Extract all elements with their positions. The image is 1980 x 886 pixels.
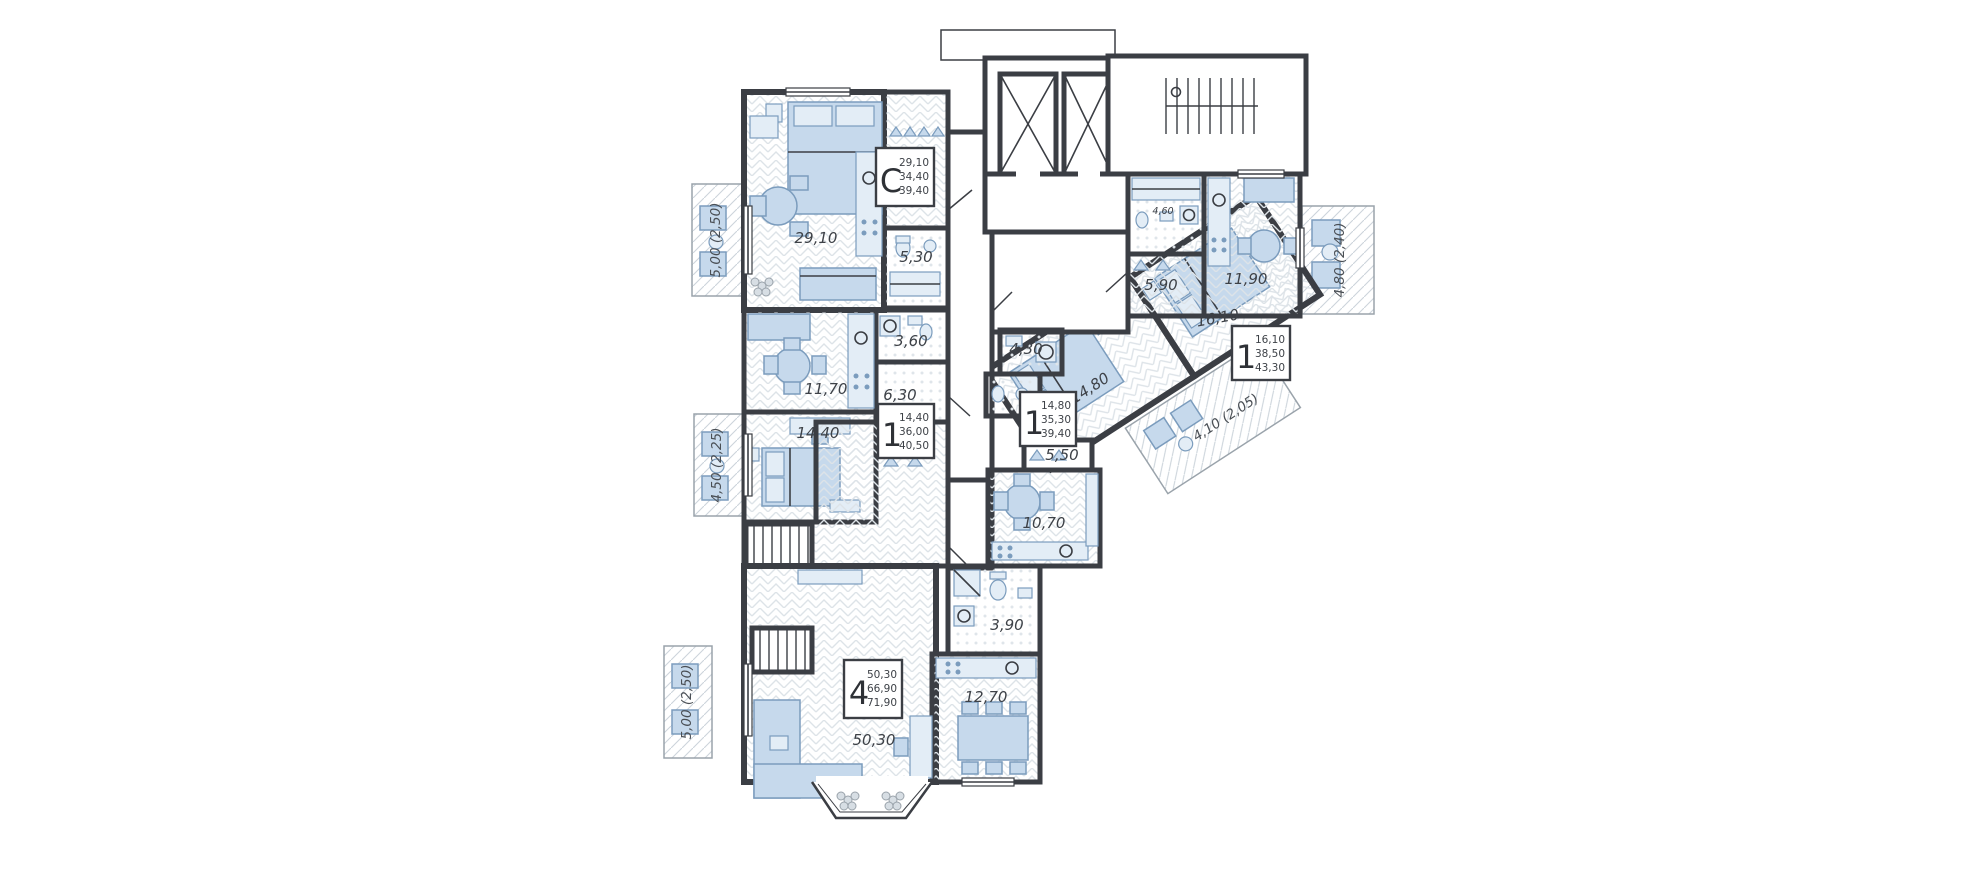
label-l1-bed: 14,40 [797,424,840,442]
card-area: 71,90 [867,697,897,709]
sofa [1244,178,1294,202]
shelf [798,570,862,584]
kitchen-counter [936,658,1036,678]
floor-plan-page: 4,10 (2,05) 14,80 [0,0,1980,886]
balcony-c-label: 5,00 (2,50) [708,203,724,278]
balcony-l1-label: 4,50 (2,25) [709,428,725,503]
label-r1-hall: 5,90 [1144,276,1177,294]
label-l1-living: 11,70 [805,380,848,398]
kitchen-counter [1208,178,1230,266]
window [1296,228,1304,268]
window [744,434,752,496]
window [786,88,850,96]
bay-window [812,776,932,818]
kitchenette [848,314,874,408]
card-area: 29,10 [899,157,929,169]
elevator-door [1078,168,1100,177]
floor-plan-svg: 4,10 (2,05) 14,80 [0,0,1980,886]
apartment-card-1-left: 1 14,40 36,00 40,50 [878,404,934,458]
label-c-living: 29,10 [795,229,838,247]
corridor [948,480,992,568]
elevator-shaft [1064,74,1112,177]
wardrobe [1086,474,1098,546]
label-a4-kitchen: 12,70 [965,688,1008,706]
window [1238,170,1284,178]
window [744,206,752,274]
card-area: 39,40 [899,185,929,197]
apartment-1-right [1128,174,1300,316]
card-area: 50,30 [867,669,897,681]
elevator-door [1016,168,1040,177]
stairs-duplex [752,628,812,672]
balcony-r1-label: 4,80 (2,40) [1332,223,1348,298]
corridor [992,232,1128,332]
balcony-a4-label: 5,00 (2,50) [679,665,695,740]
card-area: 40,50 [899,440,929,452]
card-area: 16,10 [1255,334,1285,346]
sofa [748,314,810,340]
elevator-shaft [1000,74,1056,177]
shelf [750,116,778,138]
card-area: 66,90 [867,683,897,695]
kitchen-counter [992,542,1088,560]
apartment-card-c: C 29,10 34,40 39,40 [876,148,934,206]
label-l1-hall: 6,30 [883,386,916,404]
label-r1-bath: 4,60 [1152,206,1173,217]
dining-table [958,702,1028,774]
card-area: 43,30 [1255,362,1285,374]
label-m1-bath: 4,30 [1009,340,1042,358]
label-r1-kitchen: 11,90 [1225,270,1268,288]
label-l1-bath: 3,60 [894,332,927,350]
card-area: 34,40 [899,171,929,183]
stairs-mid [746,524,812,566]
label-c-bath: 5,30 [899,248,932,266]
window [962,778,1014,786]
card-area: 35,30 [1041,414,1071,426]
window [744,664,752,736]
card-area: 39,40 [1041,428,1071,440]
label-a4-living: 50,30 [853,731,896,749]
apartment-card-1-right: 1 16,10 38,50 43,30 [1232,326,1290,380]
label-m1-hall: 5,50 [1045,446,1078,464]
label-m1-kitchen: 10,70 [1023,514,1066,532]
card-area: 36,00 [899,426,929,438]
apartment-card-1-middle: 1 14,80 35,30 39,40 [1020,392,1076,446]
label-a4-bath: 3,90 [990,616,1023,634]
sofa [800,268,876,300]
card-area: 38,50 [1255,348,1285,360]
corridor [985,174,1128,232]
apartment-card-4: 4 50,30 66,90 71,90 [844,660,902,718]
card-type: 1 [1236,338,1256,376]
stairwell-top [1108,56,1306,174]
card-area: 14,40 [899,412,929,424]
card-area: 14,80 [1041,400,1071,412]
